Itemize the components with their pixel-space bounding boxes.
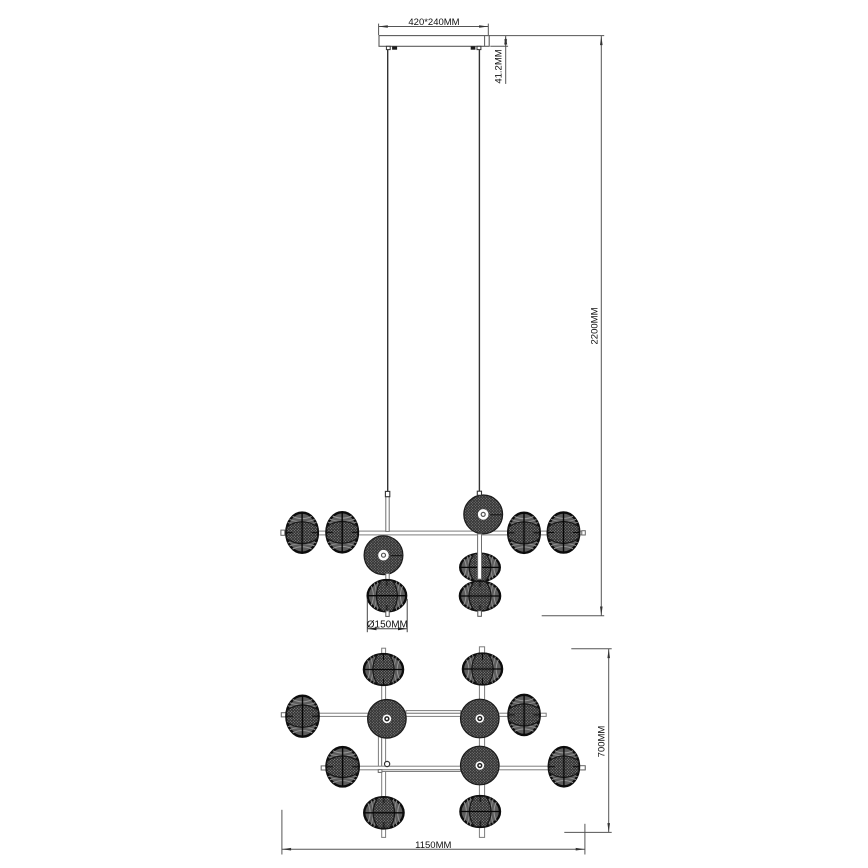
- svg-text:2200MM: 2200MM: [589, 307, 600, 344]
- svg-text:41.2MM: 41.2MM: [494, 49, 505, 83]
- svg-text:Ø150MM: Ø150MM: [367, 620, 408, 631]
- svg-text:1150MM: 1150MM: [415, 840, 451, 851]
- svg-text:700MM: 700MM: [597, 726, 608, 758]
- svg-text:420*240MM: 420*240MM: [408, 17, 459, 28]
